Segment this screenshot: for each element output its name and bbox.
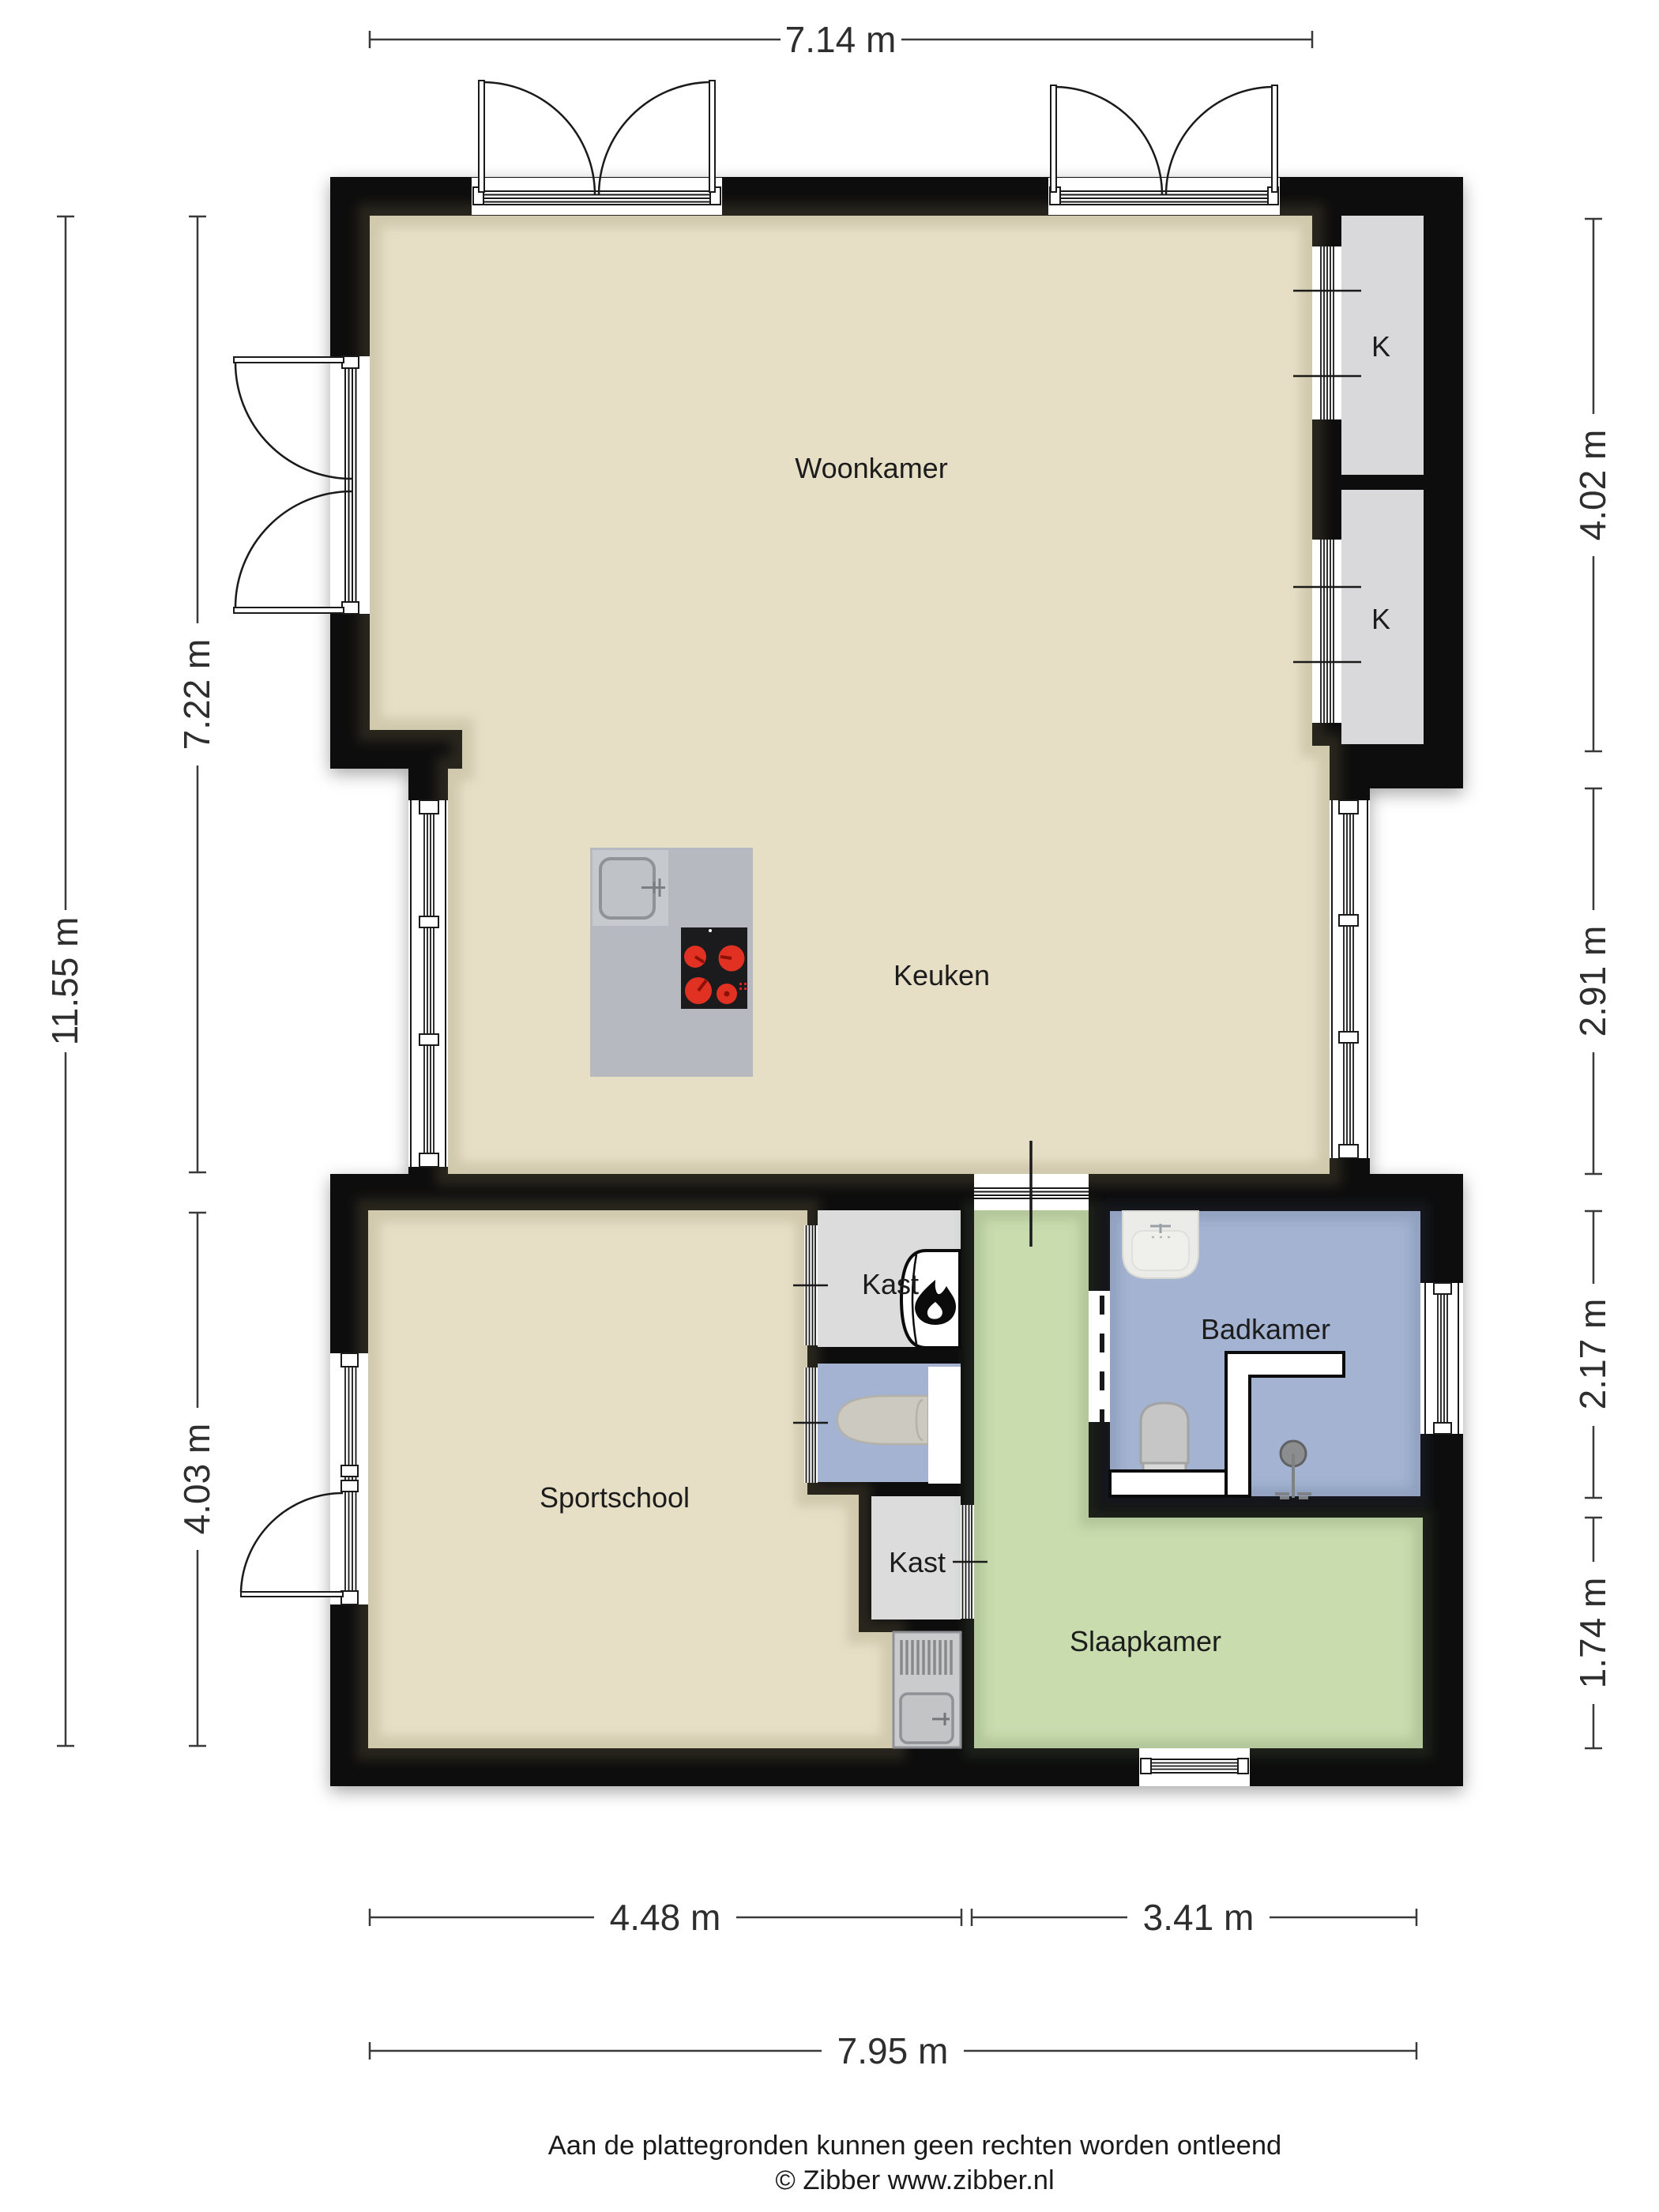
svg-text:Keuken: Keuken [893,959,990,991]
svg-text:Badkamer: Badkamer [1201,1313,1330,1345]
svg-text:3.41 m: 3.41 m [1143,1897,1255,1938]
svg-text:Woonkamer: Woonkamer [795,452,947,484]
svg-text:7.95 m: 7.95 m [837,2030,949,2071]
svg-text:2.91 m: 2.91 m [1572,926,1613,1037]
svg-text:1.74 m: 1.74 m [1572,1578,1613,1689]
svg-text:Kast: Kast [889,1546,946,1578]
svg-text:11.55 m: 11.55 m [44,917,85,1046]
svg-text:Kast: Kast [862,1268,919,1300]
svg-text:4.02 m: 4.02 m [1572,430,1613,541]
svg-text:4.03 m: 4.03 m [176,1424,217,1535]
svg-text:K: K [1371,330,1390,363]
svg-text:Slaapkamer: Slaapkamer [1070,1625,1221,1657]
svg-text:© Zibber www.zibber.nl: © Zibber www.zibber.nl [775,2165,1054,2195]
svg-text:2.17 m: 2.17 m [1572,1299,1613,1410]
svg-text:7.14 m: 7.14 m [785,19,897,60]
svg-text:4.48 m: 4.48 m [610,1897,721,1938]
svg-text:7.22 m: 7.22 m [176,639,217,750]
svg-text:K: K [1371,603,1390,635]
svg-text:Aan de plattegronden kunnen ge: Aan de plattegronden kunnen geen rechten… [548,2131,1281,2161]
svg-text:Sportschool: Sportschool [540,1481,690,1514]
